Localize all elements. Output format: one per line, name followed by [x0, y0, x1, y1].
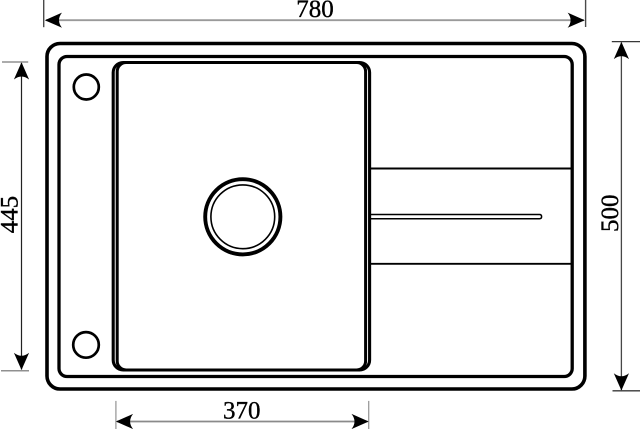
svg-text:445: 445	[0, 196, 23, 234]
svg-text:500: 500	[597, 195, 624, 233]
svg-text:370: 370	[223, 398, 261, 425]
svg-text:780: 780	[296, 0, 334, 23]
